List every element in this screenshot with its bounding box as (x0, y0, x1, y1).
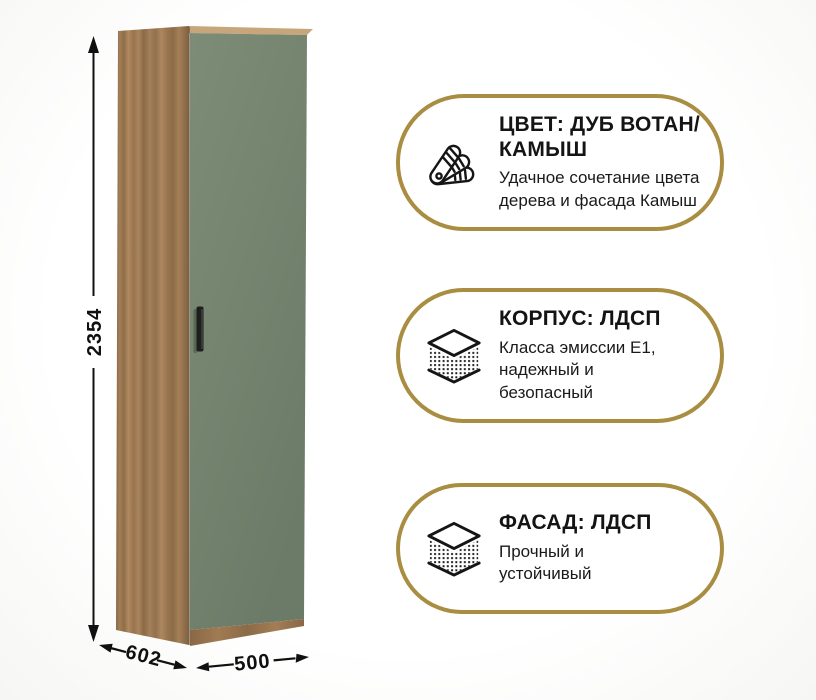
product-infographic: 2354 602 500 (0, 0, 816, 700)
height-arrowhead-bottom (88, 625, 99, 642)
badge-subtitle: Прочный и устойчивый (499, 541, 706, 586)
badge-subtitle: Удачное сочетание цвета дерева и фасада … (499, 167, 706, 212)
height-arrowhead-top (88, 36, 99, 53)
width-dimension-label: 500 (233, 650, 271, 675)
color-swatch-fan-icon (425, 134, 483, 192)
feature-badge-corpus: КОРПУС: ЛДСП Класса эмиссии Е1, надежный… (396, 288, 724, 423)
layered-board-icon (425, 520, 483, 578)
width-arrowhead-right (296, 654, 309, 663)
feature-badge-color: ЦВЕТ: ДУБ ВОТАН/ КАМЫШ Удачное сочетание… (396, 94, 724, 231)
wardrobe-side-panel (116, 26, 189, 645)
feature-badge-facade: ФАСАД: ЛДСП Прочный и устойчивый (396, 483, 724, 614)
badge-title: КОРПУС: ЛДСП (499, 307, 706, 332)
height-dimension-label: 2354 (84, 308, 106, 357)
wardrobe-door (190, 33, 307, 630)
badge-title: ЦВЕТ: ДУБ ВОТАН/ КАМЫШ (499, 113, 706, 162)
layered-board-icon (425, 327, 483, 385)
depth-dimension-label: 602 (123, 641, 164, 671)
width-arrowhead-left (196, 662, 209, 671)
badge-title: ФАСАД: ЛДСП (499, 511, 706, 536)
badge-subtitle: Класса эмиссии Е1, надежный и безопасный (499, 337, 706, 404)
depth-arrowhead-left (99, 644, 113, 653)
depth-arrowhead-right (173, 660, 187, 669)
